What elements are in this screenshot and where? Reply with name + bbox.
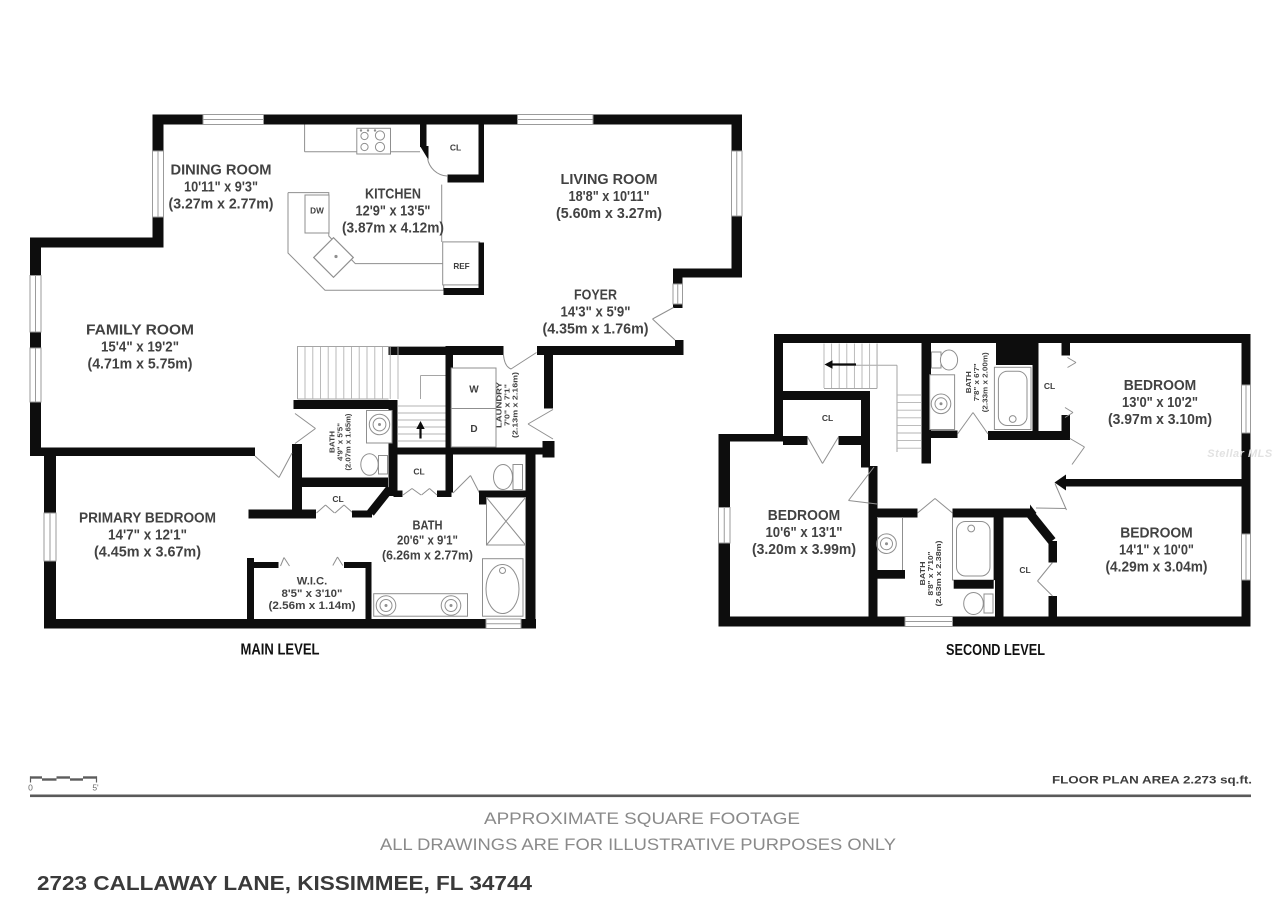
svg-text:12'9" x 13'5": 12'9" x 13'5" (356, 203, 431, 220)
svg-text:SECOND LEVEL: SECOND LEVEL (946, 642, 1045, 659)
svg-text:CL: CL (1044, 381, 1055, 391)
svg-text:DW: DW (310, 207, 324, 216)
svg-text:7'0" x 7'1": 7'0" x 7'1" (505, 384, 512, 426)
svg-text:ALL DRAWINGS ARE FOR ILLUSTRAT: ALL DRAWINGS ARE FOR ILLUSTRATIVE PURPOS… (380, 835, 896, 854)
svg-text:(2.33m x 2.00m): (2.33m x 2.00m) (982, 352, 989, 412)
svg-text:BEDROOM: BEDROOM (1124, 377, 1197, 394)
svg-text:APPROXIMATE SQUARE FOOTAGE: APPROXIMATE SQUARE FOOTAGE (484, 809, 800, 828)
svg-text:DINING ROOM: DINING ROOM (171, 162, 272, 179)
svg-text:W.I.C.: W.I.C. (297, 576, 328, 588)
svg-text:W: W (469, 385, 479, 396)
svg-text:BATH: BATH (920, 562, 927, 586)
svg-text:FLOOR PLAN AREA 2.273 sq.ft.: FLOOR PLAN AREA 2.273 sq.ft. (1052, 775, 1252, 787)
svg-text:15'4" x 19'2": 15'4" x 19'2" (101, 339, 179, 356)
svg-text:10'6" x 13'1": 10'6" x 13'1" (766, 524, 843, 541)
svg-text:CL: CL (332, 494, 343, 504)
svg-text:(6.26m x 2.77m): (6.26m x 2.77m) (382, 548, 473, 563)
svg-text:CL: CL (450, 143, 461, 153)
svg-text:8'8" x 7'10": 8'8" x 7'10" (928, 552, 935, 596)
svg-text:FAMILY ROOM: FAMILY ROOM (86, 322, 194, 339)
svg-text:(4.29m x 3.04m): (4.29m x 3.04m) (1106, 559, 1208, 576)
svg-text:(3.27m x 2.77m): (3.27m x 2.77m) (169, 196, 274, 213)
svg-text:14'1" x 10'0": 14'1" x 10'0" (1119, 542, 1194, 559)
svg-text:(2.63m x 2.38m): (2.63m x 2.38m) (936, 541, 943, 607)
svg-text:Stellar MLS: Stellar MLS (1207, 448, 1273, 460)
svg-text:10'11" x 9'3": 10'11" x 9'3" (184, 179, 258, 196)
svg-text:FOYER: FOYER (574, 286, 617, 303)
svg-text:14'7" x 12'1": 14'7" x 12'1" (108, 527, 187, 544)
svg-text:BATH: BATH (329, 431, 336, 453)
svg-text:2723 CALLAWAY LANE, KISSIMMEE,: 2723 CALLAWAY LANE, KISSIMMEE, FL 34744 (37, 873, 533, 895)
svg-text:(3.97m x 3.10m): (3.97m x 3.10m) (1108, 411, 1212, 428)
svg-text:(4.45m x 3.67m): (4.45m x 3.67m) (94, 544, 201, 561)
svg-text:CL: CL (1019, 565, 1030, 575)
svg-text:(3.20m x 3.99m): (3.20m x 3.99m) (752, 541, 856, 558)
svg-text:7'8" x 6'7": 7'8" x 6'7" (974, 363, 981, 401)
svg-text:(5.60m x 3.27m): (5.60m x 3.27m) (556, 205, 662, 222)
svg-text:(2.13m x 2.16m): (2.13m x 2.16m) (513, 372, 520, 438)
svg-text:5': 5' (92, 783, 99, 793)
svg-text:14'3" x 5'9": 14'3" x 5'9" (561, 303, 631, 320)
svg-text:CL: CL (822, 413, 833, 423)
svg-text:(3.87m x 4.12m): (3.87m x 4.12m) (342, 220, 444, 237)
svg-text:20'6" x 9'1": 20'6" x 9'1" (397, 533, 458, 548)
svg-text:PRIMARY BEDROOM: PRIMARY BEDROOM (79, 510, 216, 527)
svg-text:LIVING ROOM: LIVING ROOM (561, 171, 658, 188)
svg-text:13'0" x 10'2": 13'0" x 10'2" (1122, 394, 1198, 411)
svg-text:4'9" x 5'5": 4'9" x 5'5" (338, 423, 345, 461)
svg-text:18'8" x 10'11": 18'8" x 10'11" (569, 188, 650, 205)
svg-text:MAIN LEVEL: MAIN LEVEL (241, 642, 320, 659)
svg-text:LAUNDRY: LAUNDRY (496, 382, 503, 428)
svg-text:REF: REF (453, 262, 469, 271)
svg-text:8'5" x 3'10": 8'5" x 3'10" (282, 588, 343, 600)
svg-text:BEDROOM: BEDROOM (1120, 525, 1193, 542)
svg-text:CL: CL (413, 467, 424, 477)
svg-text:0: 0 (28, 783, 33, 793)
svg-text:(2.56m x 1.14m): (2.56m x 1.14m) (269, 600, 356, 612)
svg-text:(2.07m x 1.65m): (2.07m x 1.65m) (346, 414, 353, 471)
svg-text:BATH: BATH (413, 518, 443, 533)
svg-text:BEDROOM: BEDROOM (768, 507, 841, 524)
svg-text:BATH: BATH (966, 371, 973, 393)
svg-text:(4.71m x 5.75m): (4.71m x 5.75m) (88, 356, 193, 373)
svg-text:KITCHEN: KITCHEN (365, 186, 421, 203)
svg-text:(4.35m x 1.76m): (4.35m x 1.76m) (543, 320, 649, 337)
svg-text:D: D (470, 424, 477, 435)
